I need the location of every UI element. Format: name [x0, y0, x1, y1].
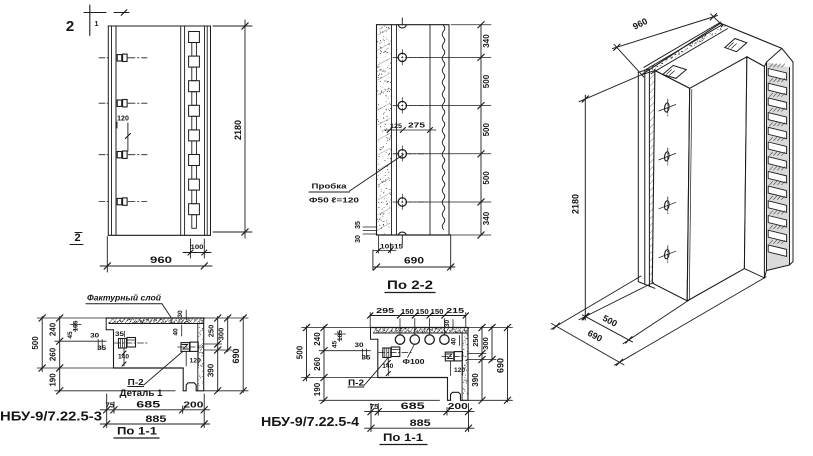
- svg-text:По 1-1: По 1-1: [117, 426, 157, 438]
- svg-text:150: 150: [431, 309, 444, 316]
- svg-text:35: 35: [115, 331, 124, 338]
- svg-text:190: 190: [313, 382, 322, 396]
- svg-text:500: 500: [296, 345, 305, 359]
- svg-text:500: 500: [482, 122, 491, 136]
- svg-text:30: 30: [177, 310, 184, 318]
- svg-text:40: 40: [451, 338, 458, 346]
- svg-text:НБУ-9/7.22.5-3: НБУ-9/7.22.5-3: [0, 410, 102, 424]
- svg-text:105: 105: [73, 320, 80, 331]
- svg-text:215: 215: [446, 306, 464, 315]
- svg-text:260: 260: [49, 347, 58, 361]
- svg-text:75: 75: [370, 404, 379, 411]
- svg-text:15: 15: [394, 244, 403, 251]
- svg-text:390: 390: [207, 363, 216, 377]
- svg-text:100: 100: [191, 244, 204, 251]
- svg-text:240: 240: [49, 322, 58, 336]
- svg-text:Деталь 1: Деталь 1: [120, 388, 163, 398]
- svg-text:250: 250: [471, 334, 480, 347]
- svg-text:НБУ-9/7.22.5-4: НБУ-9/7.22.5-4: [261, 415, 359, 429]
- svg-text:30: 30: [90, 333, 99, 340]
- svg-text:295: 295: [376, 306, 394, 315]
- svg-text:150: 150: [401, 309, 414, 316]
- svg-text:390: 390: [471, 373, 480, 387]
- svg-text:885: 885: [145, 414, 166, 424]
- svg-text:120: 120: [190, 358, 201, 365]
- svg-text:340: 340: [482, 34, 491, 48]
- svg-text:960: 960: [150, 255, 172, 266]
- svg-text:190: 190: [49, 373, 58, 387]
- svg-text:30: 30: [355, 235, 362, 243]
- svg-text:Ф100: Ф100: [403, 357, 425, 366]
- svg-text:500: 500: [31, 336, 40, 350]
- svg-text:150: 150: [416, 309, 429, 316]
- svg-text:40: 40: [173, 328, 180, 336]
- svg-text:500: 500: [482, 74, 491, 88]
- svg-text:685: 685: [136, 399, 160, 409]
- svg-text:275: 275: [408, 121, 425, 130]
- svg-text:690: 690: [404, 256, 424, 267]
- svg-text:340: 340: [482, 211, 491, 225]
- svg-text:2180: 2180: [233, 120, 243, 140]
- svg-text:885: 885: [410, 418, 431, 428]
- svg-text:300: 300: [217, 328, 226, 341]
- svg-text:Фактурный слой: Фактурный слой: [87, 293, 162, 303]
- svg-text:П-2: П-2: [128, 378, 145, 387]
- svg-text:30: 30: [444, 320, 451, 328]
- svg-text:120: 120: [117, 116, 129, 123]
- svg-text:2: 2: [74, 232, 80, 244]
- svg-text:300: 300: [481, 337, 490, 350]
- svg-text:Пробка: Пробка: [312, 182, 348, 191]
- svg-text:690: 690: [231, 348, 241, 363]
- svg-text:30: 30: [355, 342, 364, 349]
- svg-text:500: 500: [482, 171, 491, 185]
- svg-text:2180: 2180: [571, 194, 581, 214]
- svg-text:200: 200: [448, 401, 468, 411]
- svg-text:690: 690: [496, 358, 506, 373]
- svg-text:125: 125: [390, 123, 402, 130]
- svg-text:1: 1: [95, 21, 99, 28]
- svg-text:260: 260: [313, 357, 322, 371]
- svg-text:105: 105: [380, 244, 394, 251]
- svg-text:П-2: П-2: [348, 379, 365, 388]
- svg-text:105: 105: [337, 330, 344, 341]
- svg-text:690: 690: [586, 328, 604, 344]
- svg-text:35: 35: [355, 221, 362, 229]
- svg-text:2: 2: [66, 18, 74, 35]
- svg-text:По 2-2: По 2-2: [387, 278, 433, 292]
- svg-text:Ф50 ℓ=120: Ф50 ℓ=120: [309, 196, 359, 205]
- svg-text:По 1-1: По 1-1: [383, 432, 423, 444]
- svg-text:200: 200: [183, 399, 203, 409]
- svg-text:685: 685: [401, 401, 425, 411]
- svg-text:960: 960: [631, 16, 649, 32]
- svg-text:120: 120: [454, 367, 465, 374]
- svg-text:75: 75: [105, 402, 114, 409]
- svg-text:250: 250: [207, 325, 216, 338]
- svg-text:240: 240: [313, 332, 322, 346]
